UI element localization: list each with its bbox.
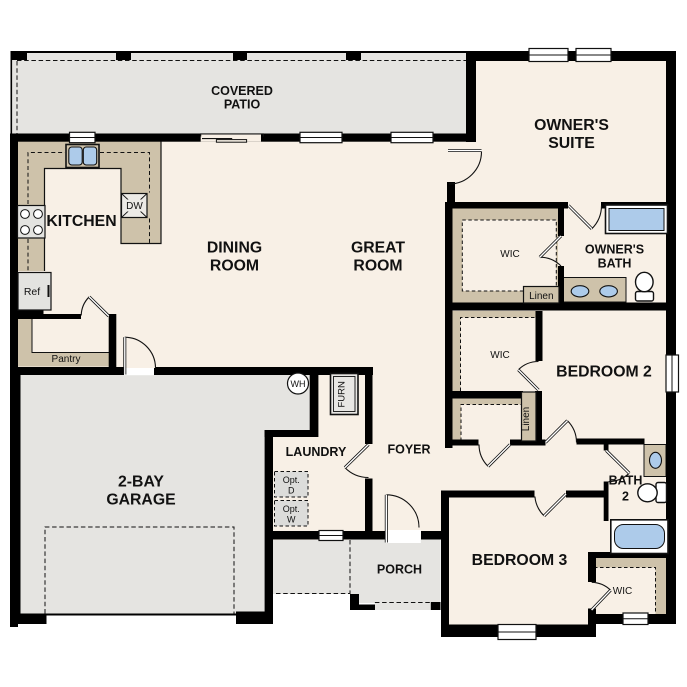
svg-text:WIC: WIC (613, 586, 632, 597)
svg-text:BATH: BATH (609, 474, 643, 488)
svg-text:Linen: Linen (521, 407, 532, 431)
svg-text:PATIO: PATIO (224, 98, 261, 112)
svg-text:OWNER'S: OWNER'S (534, 117, 609, 134)
svg-text:WH: WH (291, 379, 306, 389)
svg-text:2-BAY: 2-BAY (118, 474, 164, 491)
svg-text:FOYER: FOYER (387, 443, 430, 457)
svg-text:BATH: BATH (598, 257, 632, 271)
svg-text:SUITE: SUITE (548, 135, 595, 152)
svg-text:LAUNDRY: LAUNDRY (286, 445, 347, 459)
svg-text:BEDROOM 3: BEDROOM 3 (472, 552, 568, 569)
svg-text:WIC: WIC (500, 249, 519, 260)
svg-text:Pantry: Pantry (52, 354, 81, 365)
svg-text:Linen: Linen (529, 291, 553, 302)
svg-text:Opt.: Opt. (283, 504, 300, 514)
svg-text:GREAT: GREAT (351, 240, 405, 257)
svg-text:2: 2 (622, 490, 629, 504)
svg-text:W: W (287, 515, 296, 525)
svg-text:WIC: WIC (490, 350, 509, 361)
svg-text:PORCH: PORCH (377, 563, 422, 577)
svg-text:COVERED: COVERED (211, 84, 273, 98)
svg-text:FURN: FURN (337, 381, 348, 408)
svg-text:DINING: DINING (207, 240, 262, 257)
svg-text:Opt.: Opt. (283, 475, 300, 485)
svg-text:ROOM: ROOM (210, 258, 259, 275)
svg-text:Ref: Ref (24, 286, 40, 298)
svg-text:DW: DW (126, 201, 143, 212)
svg-text:ROOM: ROOM (353, 258, 402, 275)
svg-text:BEDROOM 2: BEDROOM 2 (556, 364, 652, 381)
svg-text:OWNER'S: OWNER'S (585, 243, 644, 257)
svg-text:KITCHEN: KITCHEN (46, 213, 116, 230)
svg-text:D: D (288, 486, 295, 496)
svg-text:GARAGE: GARAGE (106, 492, 175, 509)
